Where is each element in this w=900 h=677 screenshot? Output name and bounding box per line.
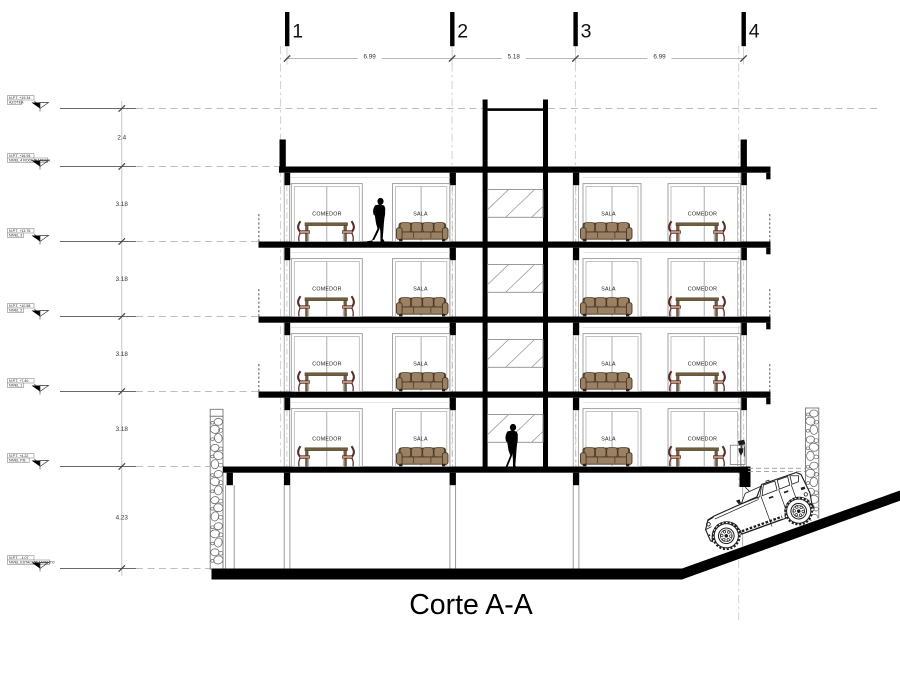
svg-text:SALA: SALA xyxy=(601,286,616,292)
svg-text:4.23: 4.23 xyxy=(116,515,129,522)
svg-text:COMEDOR: COMEDOR xyxy=(688,436,717,442)
svg-text:COMEDOR: COMEDOR xyxy=(312,286,341,292)
svg-text:3.18: 3.18 xyxy=(116,276,129,283)
svg-text:NIVEL 3: NIVEL 3 xyxy=(9,234,22,238)
svg-text:SALA: SALA xyxy=(413,436,428,442)
svg-text:COMEDOR: COMEDOR xyxy=(312,361,341,367)
svg-text:3.18: 3.18 xyxy=(116,201,129,208)
svg-text:6.99: 6.99 xyxy=(363,54,376,61)
svg-text:COMEDOR: COMEDOR xyxy=(688,286,717,292)
svg-text:3.18: 3.18 xyxy=(116,426,129,433)
svg-text:6.99: 6.99 xyxy=(653,54,666,61)
svg-text:NIVEL 1: NIVEL 1 xyxy=(9,384,22,388)
svg-text:SALA: SALA xyxy=(413,211,428,217)
svg-text:3: 3 xyxy=(581,21,592,43)
svg-text:N.P.T. +16.94: N.P.T. +16.94 xyxy=(9,154,30,158)
svg-text:N.P.T. +13.76: N.P.T. +13.76 xyxy=(9,229,30,233)
svg-text:4: 4 xyxy=(749,21,760,43)
svg-text:COMEDOR: COMEDOR xyxy=(688,361,717,367)
svg-text:COMEDOR: COMEDOR xyxy=(312,436,341,442)
svg-text:NIVEL P.B.: NIVEL P.B. xyxy=(9,459,27,463)
svg-text:N.P.T. +19.34: N.P.T. +19.34 xyxy=(9,96,30,100)
svg-text:AZOTEA: AZOTEA xyxy=(9,101,24,105)
svg-text:5.18: 5.18 xyxy=(508,54,521,61)
svg-text:SALA: SALA xyxy=(601,436,616,442)
svg-text:N.P.T. +7.40: N.P.T. +7.40 xyxy=(9,379,28,383)
svg-text:SALA: SALA xyxy=(601,361,616,367)
svg-text:2.4: 2.4 xyxy=(117,135,126,142)
svg-text:COMEDOR: COMEDOR xyxy=(312,211,341,217)
svg-text:Corte A-A: Corte A-A xyxy=(409,589,533,621)
svg-text:SALA: SALA xyxy=(413,361,428,367)
svg-text:2: 2 xyxy=(457,21,468,43)
svg-text:SALA: SALA xyxy=(601,211,616,217)
svg-text:COMEDOR: COMEDOR xyxy=(688,211,717,217)
svg-text:NIVEL 2: NIVEL 2 xyxy=(9,309,22,313)
svg-text:N.P.T. - 4.07: N.P.T. - 4.07 xyxy=(9,556,29,560)
svg-text:SALA: SALA xyxy=(413,286,428,292)
svg-text:N.P.T. +4.22: N.P.T. +4.22 xyxy=(9,454,28,458)
svg-text:3.18: 3.18 xyxy=(116,351,129,358)
svg-text:N.P.T. +10.58: N.P.T. +10.58 xyxy=(9,304,30,308)
svg-text:1: 1 xyxy=(292,21,303,43)
